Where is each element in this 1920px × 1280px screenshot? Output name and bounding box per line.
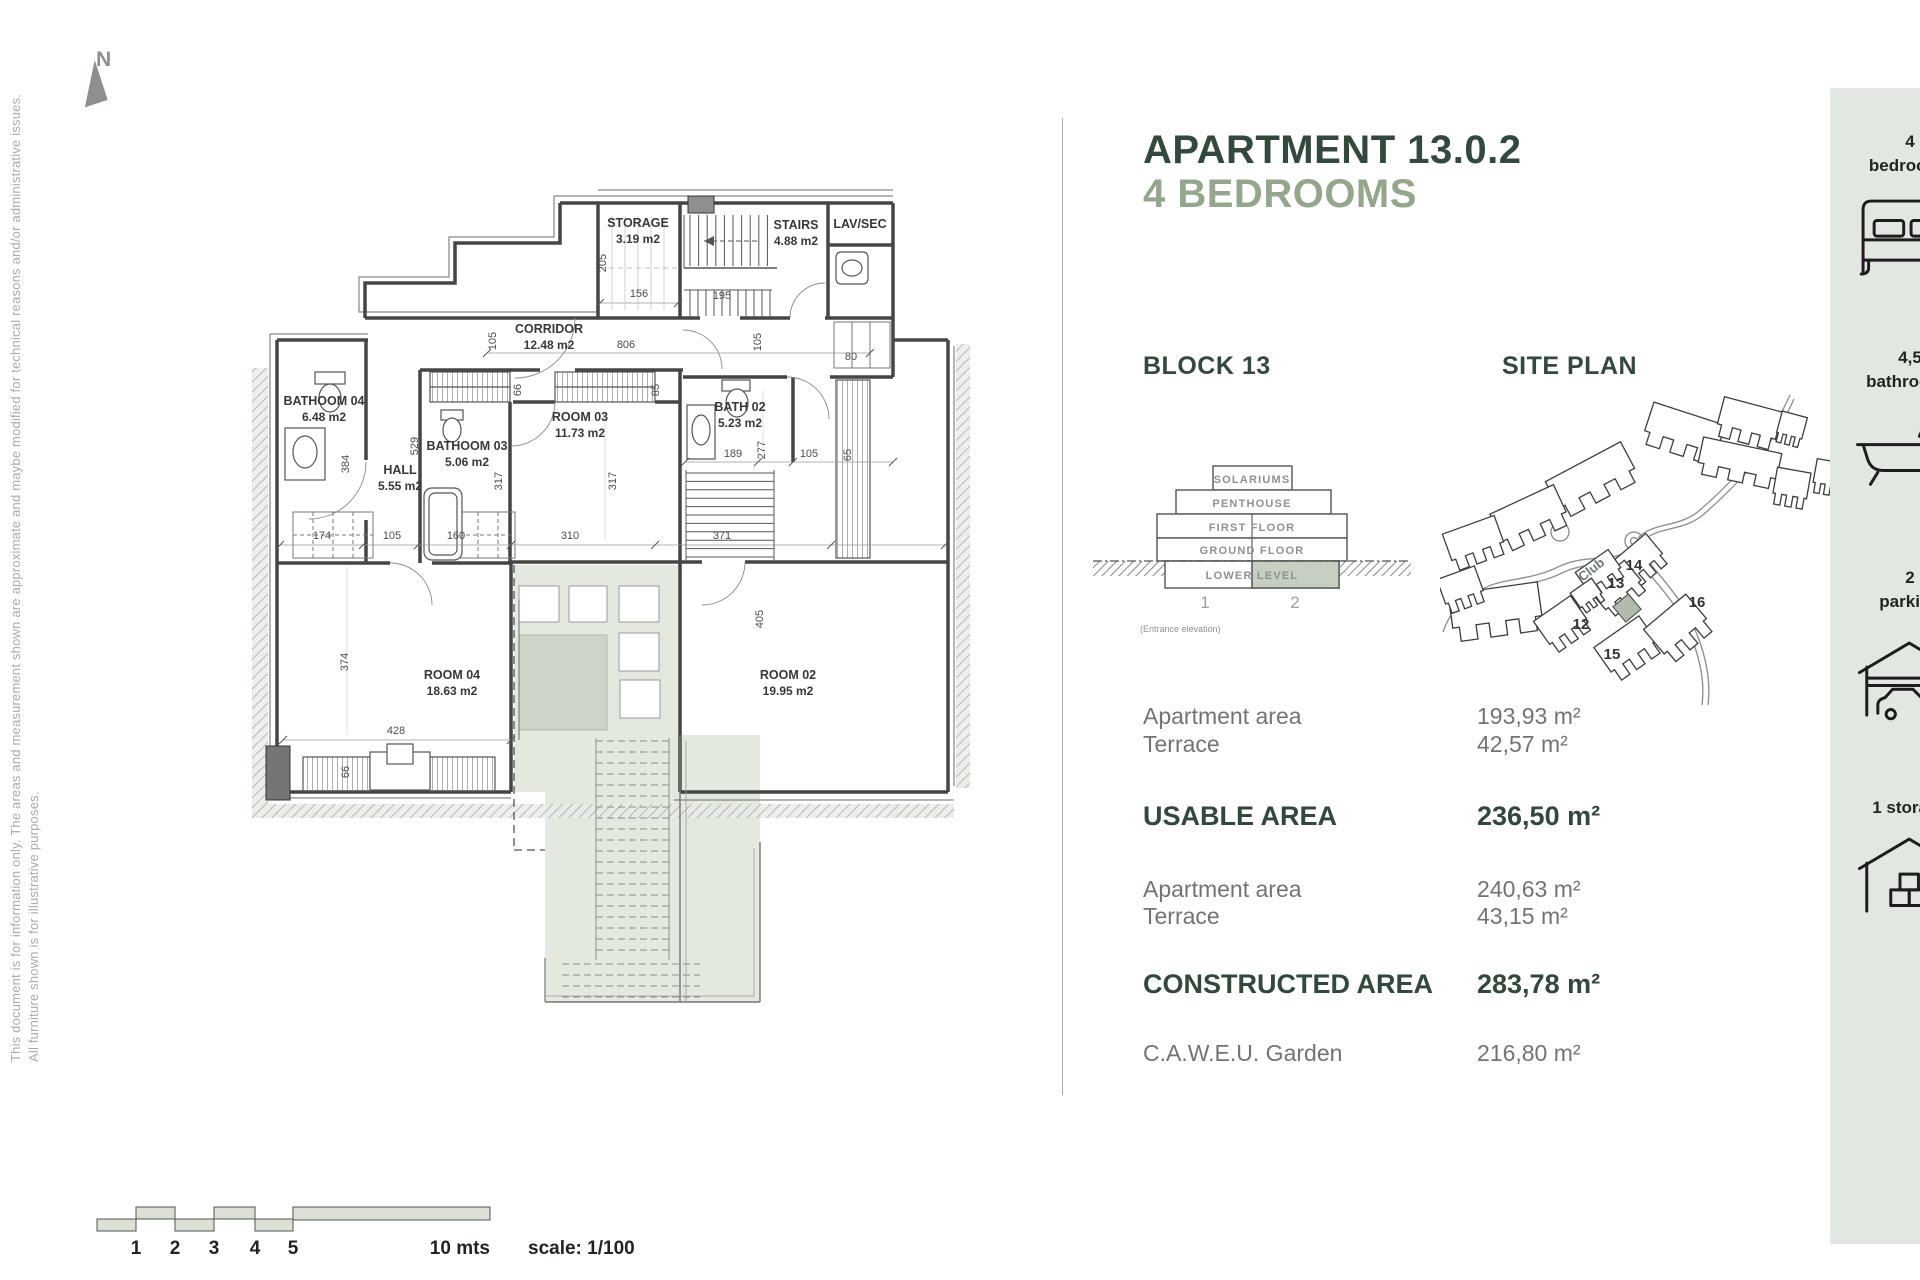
svg-text:105: 105 (752, 333, 764, 351)
svg-text:405: 405 (754, 610, 766, 628)
block-heading: BLOCK 13 (1143, 352, 1271, 381)
svg-text:384: 384 (340, 455, 352, 473)
svg-text:STORAGE: STORAGE (607, 216, 669, 230)
svg-text:5.55 m2: 5.55 m2 (378, 479, 422, 493)
bed-icon (1852, 192, 1920, 289)
bathrooms-count: 4,5 (1830, 346, 1920, 370)
area-label: Terrace (1143, 731, 1220, 757)
brochure-page: STORAGE3.19 m2STAIRS4.88 m2LAV/SECCORRID… (0, 0, 1920, 1280)
area-value: 240,63 m² (1477, 876, 1581, 903)
svg-text:ROOM 03: ROOM 03 (552, 410, 608, 424)
elevation-caption: (Entrance elevation) (1140, 624, 1221, 634)
area-row: Apartment area 193,93 m² (1143, 703, 1723, 730)
sidebar-item-parking: 2 parking (1830, 566, 1920, 614)
area-label: Apartment area (1143, 703, 1302, 729)
svg-text:4.88 m2: 4.88 m2 (774, 234, 818, 248)
svg-text:BATH 02: BATH 02 (714, 400, 765, 414)
unit-number-1: 1 (1200, 593, 1209, 612)
svg-text:16: 16 (1689, 594, 1706, 611)
page-subtitle: 4 BEDROOMS (1143, 172, 1417, 217)
scale-ratio-label: scale: 1/100 (528, 1238, 635, 1259)
area-label: USABLE AREA (1143, 801, 1337, 831)
svg-text:11.73 m2: 11.73 m2 (555, 426, 605, 440)
storage-box-icon (1852, 828, 1920, 929)
sidebar-item-bathrooms: 4,5 bathrooms (1830, 346, 1920, 394)
svg-text:3: 3 (209, 1238, 220, 1259)
svg-text:66: 66 (340, 766, 352, 778)
floor-label-penthouse: PENTHOUSE (1212, 498, 1291, 510)
svg-text:13: 13 (1608, 575, 1625, 592)
svg-text:ROOM 02: ROOM 02 (760, 668, 816, 682)
svg-text:14: 14 (1626, 557, 1643, 574)
unit-number-2: 2 (1290, 593, 1299, 612)
svg-text:CORRIDOR: CORRIDOR (515, 322, 583, 336)
svg-text:5.06 m2: 5.06 m2 (445, 455, 489, 469)
svg-text:19.95 m2: 19.95 m2 (763, 684, 814, 698)
disclaimer-line1: This document is for information only. T… (8, 94, 23, 1062)
svg-text:529: 529 (409, 437, 421, 455)
area-row: Terrace 43,15 m² (1143, 903, 1723, 930)
desk (370, 744, 430, 790)
area-value: 283,78 m² (1477, 969, 1600, 1000)
page-title: APARTMENT 13.0.2 (1143, 128, 1521, 173)
floor-label-ground: GROUND FLOOR (1200, 545, 1305, 557)
corridor-niche (834, 322, 890, 368)
svg-text:BATHOOM 03: BATHOOM 03 (426, 439, 507, 453)
svg-text:ROOM 04: ROOM 04 (424, 668, 480, 682)
chimney-block (688, 196, 714, 213)
area-label: Terrace (1143, 903, 1220, 929)
svg-text:1: 1 (131, 1238, 142, 1259)
svg-text:66: 66 (512, 384, 524, 396)
storage-label: 1 storage (1830, 796, 1920, 820)
svg-text:174: 174 (313, 530, 331, 542)
svg-text:371: 371 (713, 530, 731, 542)
svg-text:5: 5 (288, 1238, 299, 1259)
block-elevation-diagram: SOLARIUMS PENTHOUSE FIRST FLOOR GROUND F… (1090, 460, 1420, 650)
svg-text:310: 310 (561, 530, 579, 542)
garage-car-icon (1852, 632, 1920, 733)
svg-text:STAIRS: STAIRS (774, 218, 819, 232)
svg-text:BATHOOM 04: BATHOOM 04 (283, 394, 364, 408)
svg-text:4: 4 (250, 1238, 261, 1259)
svg-text:18.63 m2: 18.63 m2 (427, 684, 478, 698)
area-value: 43,15 m² (1477, 903, 1568, 930)
svg-text:374: 374 (339, 653, 351, 671)
svg-text:428: 428 (387, 725, 405, 737)
area-value: 193,93 m² (1477, 703, 1581, 730)
svg-text:277: 277 (756, 441, 768, 459)
garden-area-row: C.A.W.E.U. Garden 216,80 m² (1143, 1040, 1723, 1067)
floor-label-lower: LOWER LEVEL (1206, 570, 1299, 582)
svg-text:156: 156 (630, 288, 648, 300)
svg-text:195: 195 (713, 290, 731, 302)
bathtub-icon (1852, 406, 1920, 503)
scale-end-label: 10 mts (430, 1238, 490, 1259)
svg-text:65: 65 (842, 449, 854, 461)
area-label: CONSTRUCTED AREA (1143, 969, 1433, 999)
svg-text:205: 205 (597, 254, 609, 272)
bedrooms-label: bedrooms (1830, 154, 1920, 178)
parking-count: 2 (1830, 566, 1920, 590)
svg-text:3.19 m2: 3.19 m2 (616, 232, 660, 246)
parking-label: parking (1830, 590, 1920, 614)
bedrooms-count: 4 (1830, 130, 1920, 154)
svg-text:HALL: HALL (383, 463, 417, 477)
terrace-area (514, 565, 760, 1002)
vertical-divider (1062, 118, 1063, 1095)
svg-text:189: 189 (724, 448, 742, 460)
svg-text:317: 317 (493, 472, 505, 490)
north-arrow-icon: N (72, 48, 111, 107)
pillar-block (266, 746, 290, 800)
constructed-area-row: CONSTRUCTED AREA 283,78 m² (1143, 969, 1723, 1000)
area-value: 216,80 m² (1477, 1040, 1581, 1067)
svg-text:5.23 m2: 5.23 m2 (718, 416, 762, 430)
svg-text:160: 160 (447, 530, 465, 542)
svg-text:6.48 m2: 6.48 m2 (302, 410, 346, 424)
svg-text:80: 80 (845, 351, 857, 363)
area-value: 42,57 m² (1477, 731, 1568, 758)
bathrooms-label: bathrooms (1830, 370, 1920, 394)
sidebar-item-bedrooms: 4 bedrooms (1830, 130, 1920, 178)
floor-label-solariums: SOLARIUMS (1214, 474, 1291, 486)
usable-area-row: USABLE AREA 236,50 m² (1143, 801, 1723, 832)
svg-text:12.48 m2: 12.48 m2 (524, 338, 575, 352)
scale-bar: 12345 10 mts scale: 1/100 (97, 1207, 635, 1259)
svg-text:317: 317 (607, 472, 619, 490)
area-label: C.A.W.E.U. Garden (1143, 1040, 1342, 1066)
north-label: N (96, 48, 111, 71)
svg-text:105: 105 (800, 448, 818, 460)
floor-label-first: FIRST FLOOR (1209, 522, 1296, 534)
svg-text:2: 2 (170, 1238, 181, 1259)
ground-hatch-left (1093, 561, 1165, 576)
bathroom-fixtures (285, 252, 868, 560)
ground-hatch-right (1339, 561, 1411, 576)
site-plan-heading: SITE PLAN (1502, 352, 1637, 381)
svg-text:85: 85 (650, 384, 662, 396)
disclaimer-line2: All furniture shown is for illustrative … (26, 791, 41, 1062)
area-row: Apartment area 240,63 m² (1143, 876, 1723, 903)
svg-text:15: 15 (1604, 646, 1621, 663)
area-label: Apartment area (1143, 876, 1302, 902)
site-buildings (1440, 397, 1847, 680)
sidebar-item-storage: 1 storage (1830, 796, 1920, 820)
svg-text:12: 12 (1573, 616, 1590, 633)
svg-text:LAV/SEC: LAV/SEC (833, 217, 886, 231)
area-value: 236,50 m² (1477, 801, 1600, 832)
svg-text:105: 105 (383, 530, 401, 542)
area-row: Terrace 42,57 m² (1143, 731, 1723, 758)
svg-text:806: 806 (617, 339, 635, 351)
svg-text:105: 105 (487, 332, 499, 350)
